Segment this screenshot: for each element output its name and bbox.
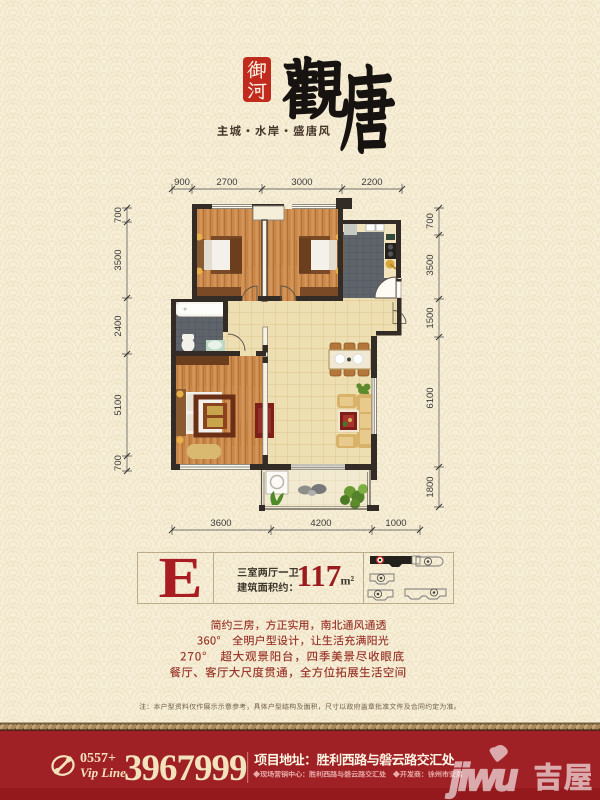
svg-text:3967999: 3967999	[124, 748, 247, 789]
svg-text:2200: 2200	[361, 177, 382, 188]
svg-text:3600: 3600	[210, 518, 231, 529]
svg-text:1800: 1800	[425, 476, 436, 497]
svg-text:E: E	[158, 547, 202, 610]
svg-text:6100: 6100	[425, 387, 436, 408]
svg-text:2400: 2400	[113, 315, 124, 336]
svg-text:1000: 1000	[385, 518, 406, 529]
svg-text:jiwu: jiwu	[445, 757, 518, 799]
svg-text:3000: 3000	[291, 177, 312, 188]
svg-text:900: 900	[174, 177, 190, 188]
svg-text:2700: 2700	[216, 177, 237, 188]
svg-text:3500: 3500	[113, 249, 124, 270]
svg-text:m²: m²	[341, 574, 355, 588]
svg-text:4200: 4200	[310, 518, 331, 529]
svg-text:3500: 3500	[425, 254, 436, 275]
svg-text:117: 117	[297, 558, 342, 593]
svg-text:Vip Line: Vip Line	[80, 765, 126, 780]
svg-text:700: 700	[425, 213, 436, 229]
svg-text:5100: 5100	[113, 394, 124, 415]
svg-text:1500: 1500	[425, 307, 436, 328]
svg-text:700: 700	[113, 207, 124, 223]
svg-text:0557+: 0557+	[80, 751, 116, 766]
svg-text:700: 700	[113, 455, 124, 471]
